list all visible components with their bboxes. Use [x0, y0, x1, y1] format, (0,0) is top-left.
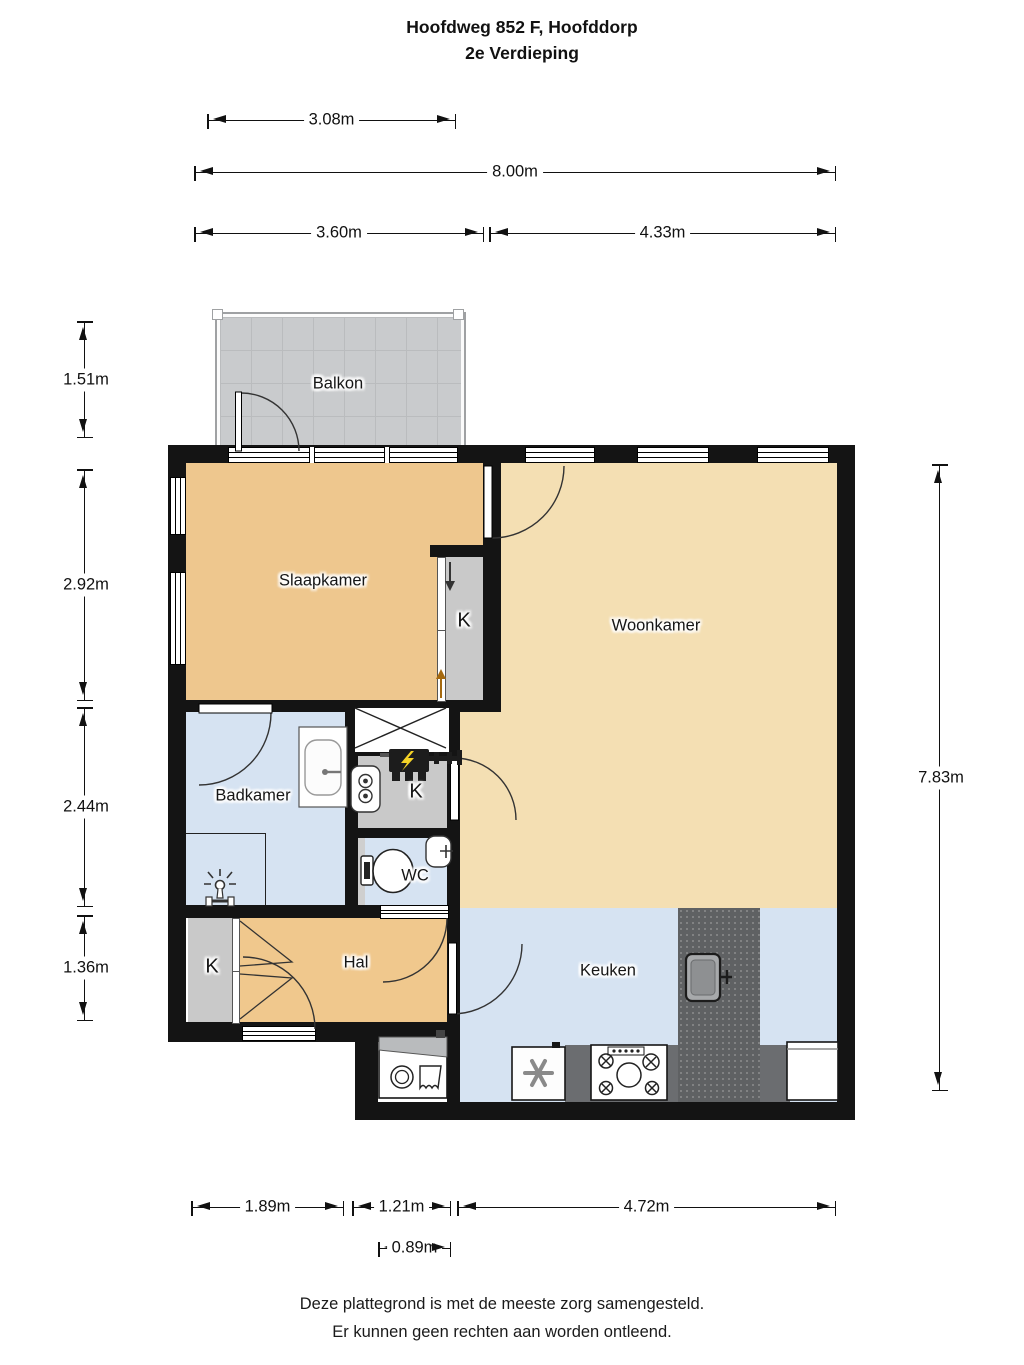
closet-sliding-door [437, 557, 446, 702]
dim-label: 1.21m [374, 1198, 430, 1217]
dim-bedroom-depth: 2.92m [84, 470, 85, 700]
label-kast-slaapkamer: K [457, 610, 470, 633]
window-mullion [309, 447, 315, 463]
dim-niche-width: 1.21m [353, 1207, 450, 1208]
dim-bedroom-width: 3.60m [195, 233, 483, 234]
dim-label: 1.89m [240, 1198, 296, 1217]
title-address: Hoofdweg 852 F, Hoofddorp [20, 14, 1024, 40]
dim-label: 2.44m [60, 796, 112, 819]
dim-label: 4.33m [635, 224, 691, 243]
window-mullion [384, 447, 390, 463]
dim-label: 0.89m [387, 1239, 443, 1258]
dim-bathroom-depth: 2.44m [84, 708, 85, 906]
wall-bottom [355, 1102, 855, 1120]
duct-shaft [353, 706, 451, 754]
dim-label: 7.83m [915, 766, 967, 789]
label-kast-techniek: K [409, 781, 422, 804]
label-hal: Hal [344, 954, 369, 973]
dim-kitchen-width: 4.72m [458, 1207, 835, 1208]
kitchen-counter [565, 1045, 678, 1102]
label-woonkamer: Woonkamer [612, 617, 701, 636]
disclaimer-line1: Deze plattegrond is met de meeste zorg s… [0, 1290, 1004, 1318]
dim-total-depth: 7.83m [939, 465, 940, 1090]
wall-right [837, 445, 855, 1120]
wc-partition [358, 838, 365, 905]
label-balkon: Balkon [313, 375, 363, 394]
label-slaapkamer: Slaapkamer [279, 572, 367, 591]
dim-label: 8.00m [487, 163, 543, 182]
wall-bedroom-living [483, 463, 501, 712]
label-wc: WC [401, 867, 429, 886]
label-kast-hal: K [205, 956, 218, 979]
living-window [757, 447, 829, 463]
dim-label: 1.51m [60, 368, 112, 391]
bedroom-window [170, 477, 186, 535]
floorplan-page: Hoofdweg 852 F, Hoofddorp 2e Verdieping … [0, 0, 1024, 1365]
dim-label: 4.72m [619, 1198, 675, 1217]
living-window [637, 447, 709, 463]
bedroom-window [170, 572, 186, 665]
wall-closet-top [430, 545, 501, 557]
shower-area [186, 833, 266, 906]
balcony-post [453, 309, 464, 320]
dim-hall-width: 1.89m [192, 1207, 343, 1208]
label-badkamer: Badkamer [215, 787, 290, 806]
kitchen-island [678, 908, 760, 1102]
disclaimer: Deze plattegrond is met de meeste zorg s… [0, 1290, 1004, 1346]
hall-closet-door-track [232, 918, 240, 1024]
room-woonkamer [460, 463, 837, 908]
dim-label: 3.08m [304, 111, 360, 130]
wall-bath-hall [186, 905, 345, 918]
dim-label: 1.36m [60, 957, 112, 980]
dim-balcony-width: 3.08m [208, 120, 455, 121]
dim-total-width: 8.00m [195, 172, 835, 173]
living-window [525, 447, 595, 463]
balcony-post [212, 309, 223, 320]
wall-bedroom-bottom [186, 700, 501, 712]
wc-door-frame [380, 905, 449, 919]
disclaimer-line2: Er kunnen geen rechten aan worden ontlee… [0, 1318, 1004, 1346]
wall-hall-living [447, 700, 460, 1102]
dim-hall-depth: 1.36m [84, 916, 85, 1020]
wall-closet-wc [345, 828, 460, 838]
page-title: Hoofdweg 852 F, Hoofddorp 2e Verdieping [20, 14, 1024, 66]
title-floor: 2e Verdieping [20, 40, 1024, 66]
dim-balcony-depth: 1.51m [84, 322, 85, 437]
kitchen-counter [760, 1045, 790, 1102]
dim-living-width: 4.33m [490, 233, 835, 234]
closet-techniek [355, 752, 460, 828]
wall-step [355, 1022, 378, 1120]
front-door-frame [242, 1026, 316, 1041]
label-keuken: Keuken [580, 962, 636, 981]
dim-washer-width: 0.89m [379, 1248, 450, 1249]
dim-label: 2.92m [60, 574, 112, 597]
balcony-slider-window [228, 447, 458, 463]
dim-label: 3.60m [311, 224, 367, 243]
